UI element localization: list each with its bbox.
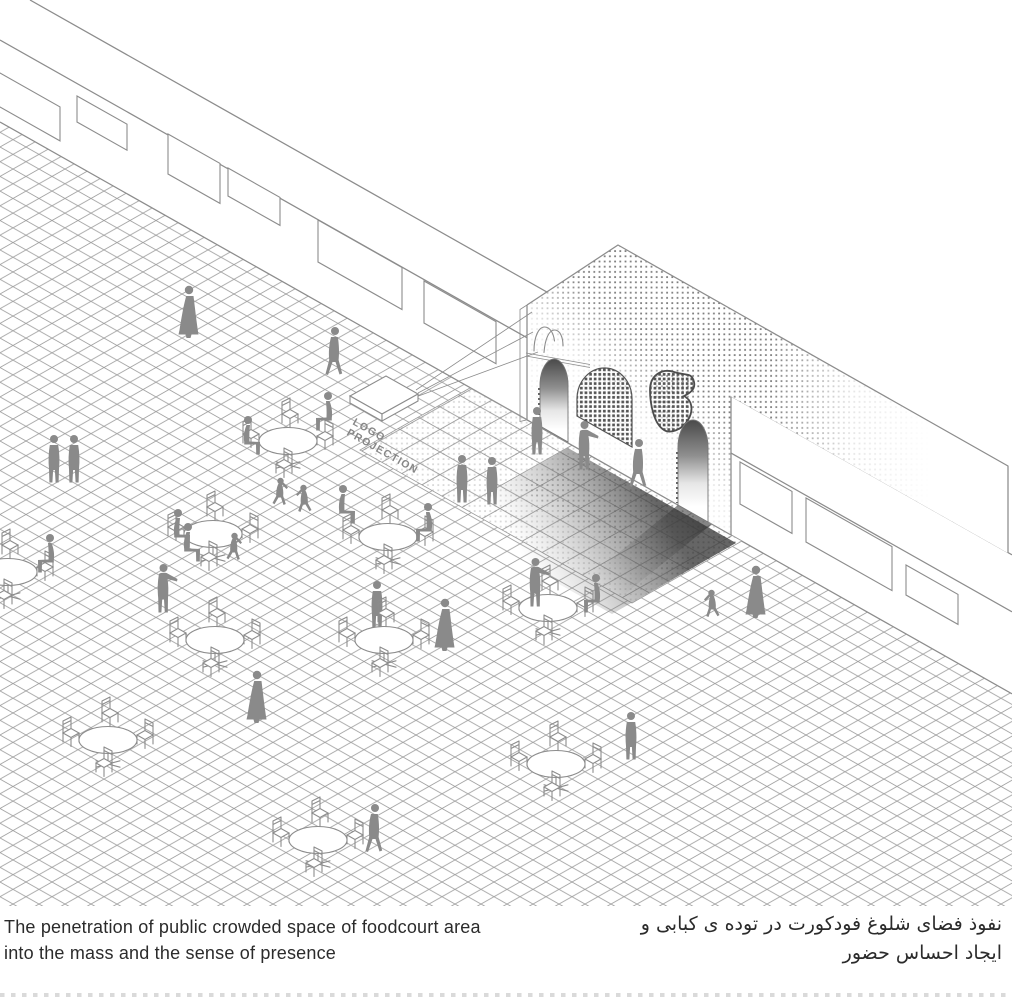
caption-english-line1: The penetration of public crowded space …: [4, 914, 481, 940]
caption-strip: The penetration of public crowded space …: [0, 906, 1012, 1000]
caption-english-line2: into the mass and the sense of presence: [4, 940, 481, 966]
diagram-page: LOGO PROJECTION: [0, 0, 1012, 1000]
caption-persian-line1: نفوذ فضای شلوغ فودکورت در توده ی کبابی و: [641, 910, 1002, 939]
caption-persian-line2: ایجاد احساس حضور: [641, 939, 1002, 968]
arch-doorway: [677, 420, 708, 522]
axonometric-drawing: LOGO PROJECTION: [0, 0, 1012, 908]
caption-english: The penetration of public crowded space …: [4, 914, 481, 966]
bottom-dash-divider: [0, 993, 1012, 997]
caption-persian: نفوذ فضای شلوغ فودکورت در توده ی کبابی و…: [641, 910, 1002, 968]
